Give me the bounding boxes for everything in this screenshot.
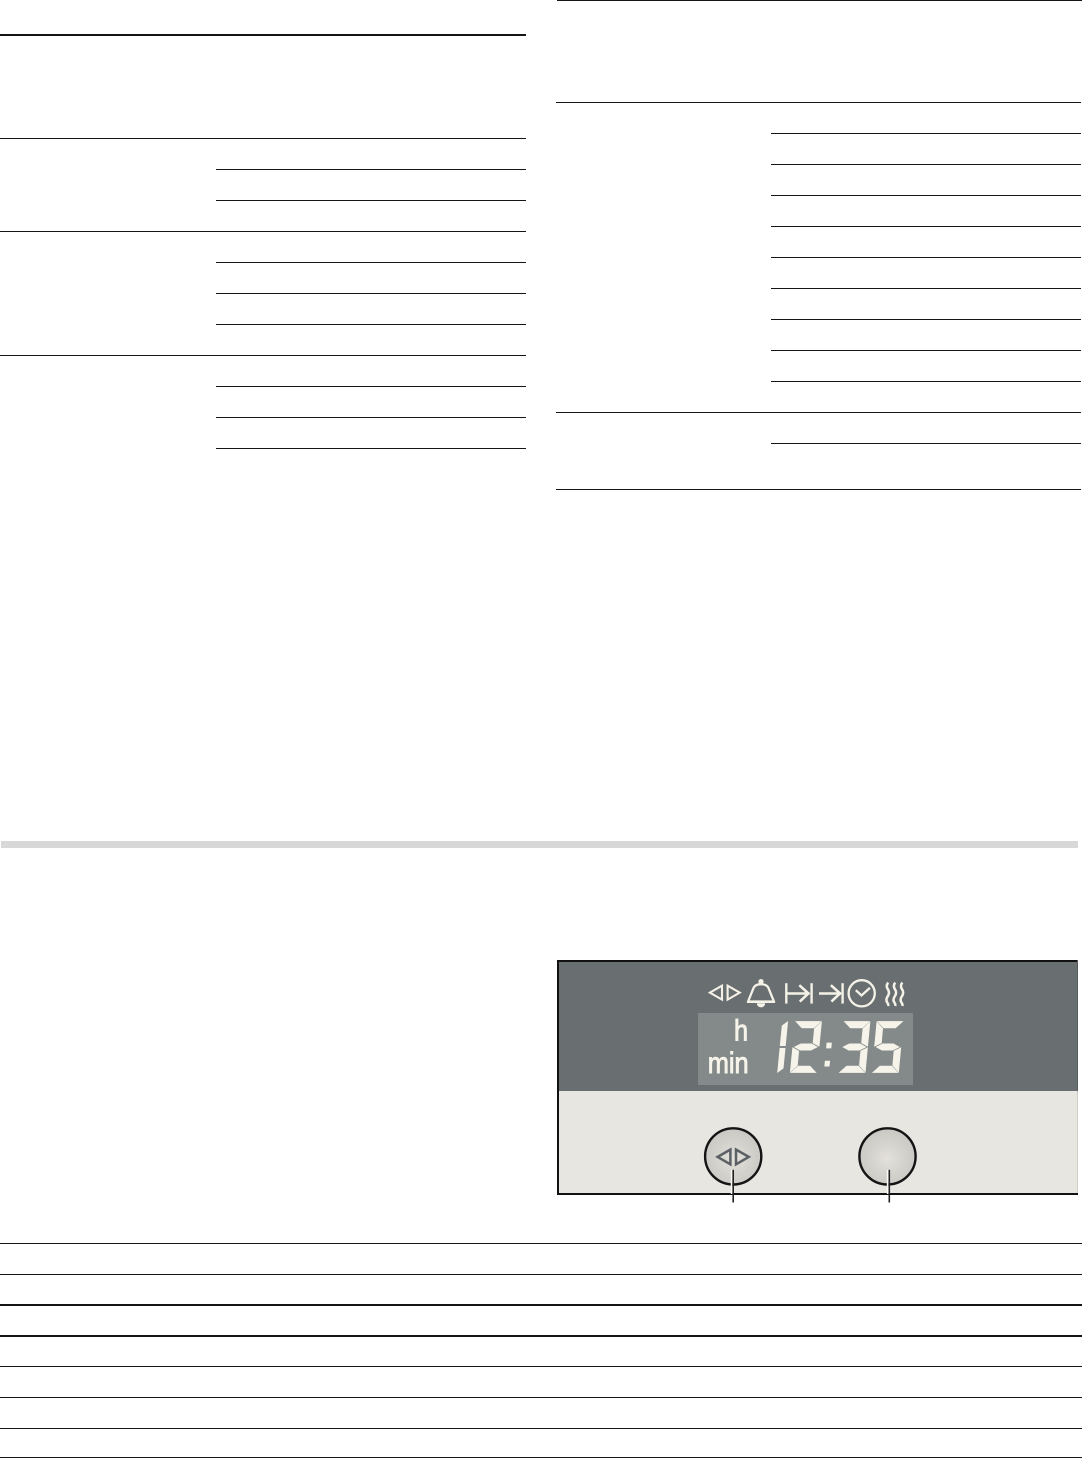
svg-text:min: min [708, 1046, 749, 1079]
svg-text:h: h [734, 1014, 748, 1047]
